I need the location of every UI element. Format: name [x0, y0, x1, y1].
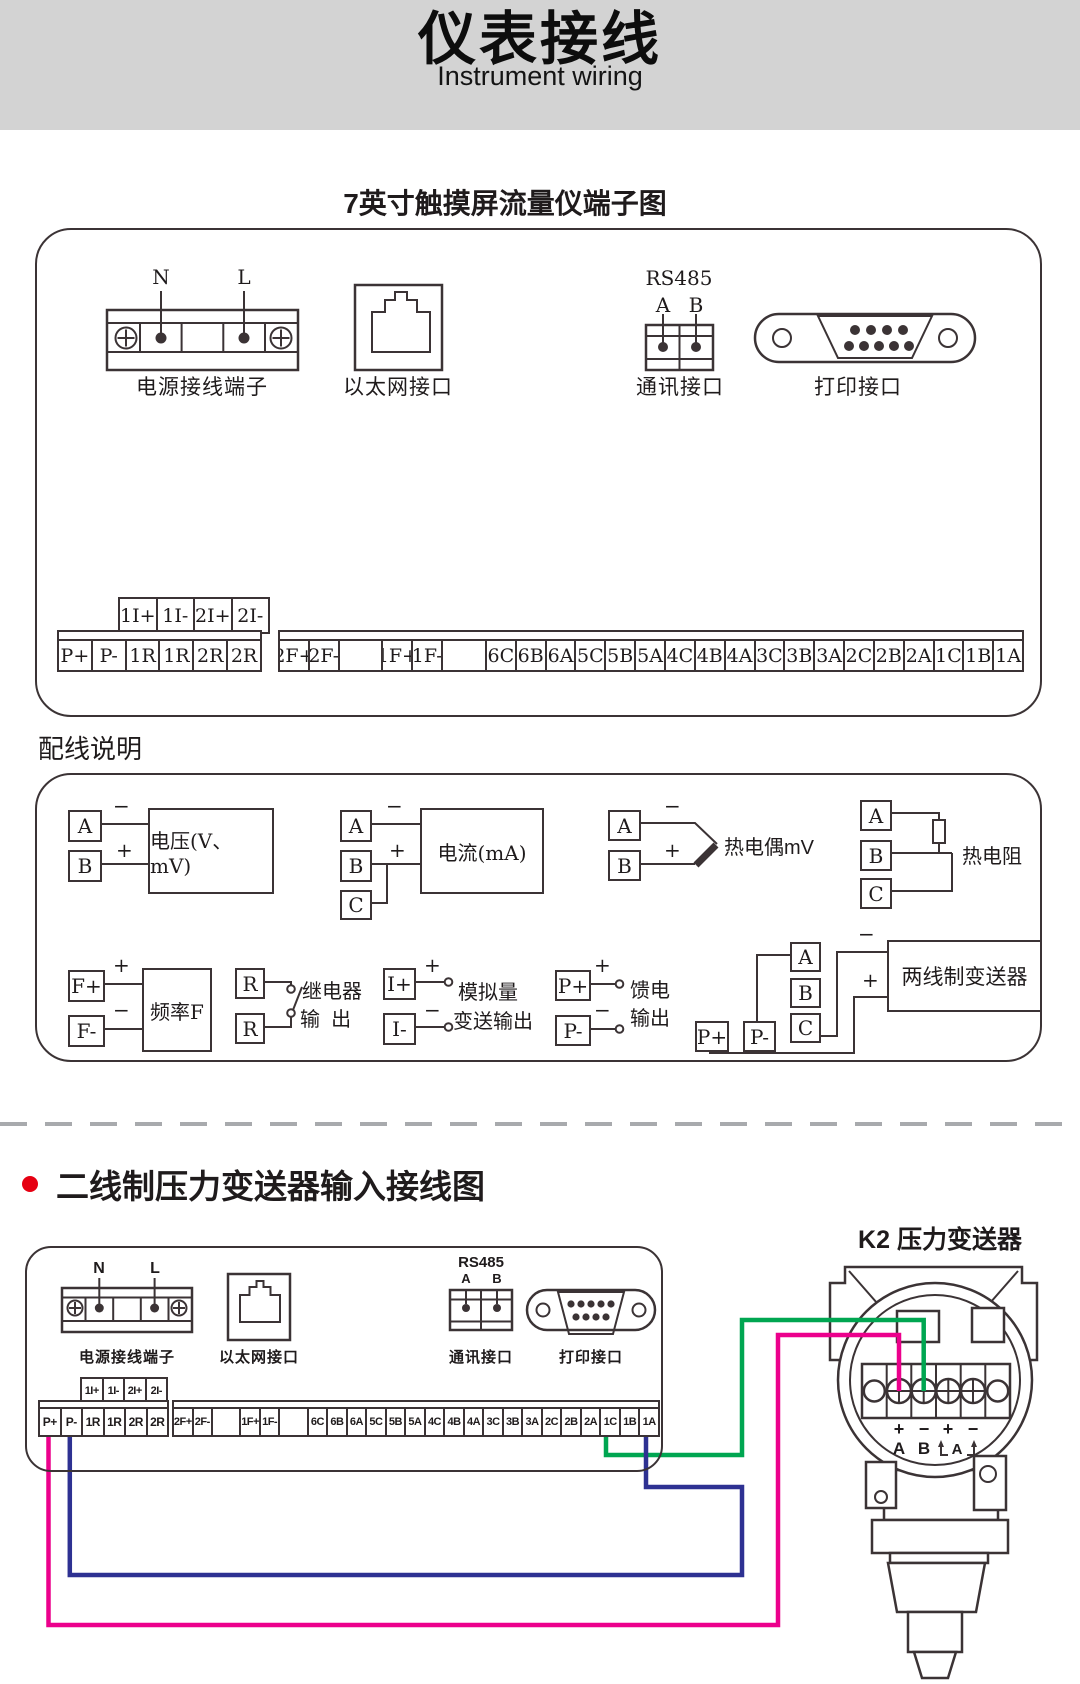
terminal-strip-group1-small: P+P-1R1R2R2R	[38, 1400, 169, 1437]
terminal-cell: P+	[40, 1409, 62, 1435]
terminal-cell: 4B	[696, 641, 726, 670]
frequency-minus: −	[113, 998, 130, 1022]
section1-title: 7英寸触摸屏流量仪端子图	[343, 182, 667, 222]
terminal-cell: 5A	[406, 1409, 426, 1435]
ethernet-caption-small: 以太网接口	[219, 1346, 299, 1367]
feed-label-line1: 馈电	[630, 974, 670, 1003]
page: 仪表接线 Instrument wiring 7英寸触摸屏流量仪端子图 N L …	[0, 0, 1080, 1684]
terminal-cell	[280, 1409, 308, 1435]
terminal-cell: 6C	[487, 641, 517, 670]
terminal-cell: 2I+	[195, 599, 233, 632]
terminal-cell: P+	[59, 641, 93, 670]
printer-caption-small: 打印接口	[559, 1346, 623, 1367]
twowire-minus: −	[858, 922, 875, 946]
terminal-cell: 4C	[666, 641, 696, 670]
terminal-cell: 6C	[309, 1409, 329, 1435]
terminal-cell: 4A	[726, 641, 756, 670]
terminal-cell: 6A	[348, 1409, 368, 1435]
analog-terminal-iplus: I+	[383, 968, 416, 1000]
terminal-cell: 5B	[387, 1409, 407, 1435]
terminal-cell: 2I+	[125, 1379, 147, 1402]
relay-label-line2: 输 出	[300, 1003, 351, 1032]
terminal-cell: 4B	[445, 1409, 465, 1435]
thermocouple-plus: +	[664, 838, 681, 862]
twowire-terminal-pminus: P-	[743, 1021, 776, 1052]
power-l-label: L	[237, 265, 250, 289]
power-caption-small: 电源接线端子	[79, 1346, 175, 1367]
current-terminal-c: C	[340, 890, 372, 920]
strip-band	[59, 632, 260, 641]
terminal-cell	[443, 641, 487, 670]
terminal-cell: 2R	[194, 641, 228, 670]
terminal-cell: 2F+	[280, 641, 310, 670]
twowire-box: 两线制变送器	[887, 940, 1042, 1012]
analog-label-line2: 变送输出	[453, 1005, 533, 1034]
rs485-b-label-small: B	[492, 1271, 501, 1286]
analog-minus: −	[424, 998, 441, 1022]
current-box: 电流(mA)	[420, 808, 544, 894]
current-minus: −	[386, 794, 403, 818]
terminal-cell: 3B	[785, 641, 815, 670]
terminal-cell: 5C	[367, 1409, 387, 1435]
terminal-cell: 2F-	[310, 641, 340, 670]
terminal-cell: 6B	[517, 641, 547, 670]
strip-band	[40, 1402, 167, 1409]
analog-plus: +	[424, 953, 441, 977]
voltage-terminal-b: B	[68, 850, 102, 882]
terminal-strip-group1: P+P-1R1R2R2R	[57, 630, 262, 672]
strip-band	[174, 1402, 658, 1409]
terminal-cell: 2C	[845, 641, 875, 670]
transmitter-b-label: B	[918, 1439, 930, 1459]
transmitter-minus1: −	[919, 1419, 930, 1440]
ethernet-caption: 以太网接口	[343, 371, 453, 401]
analog-label-line1: 模拟量	[458, 976, 518, 1005]
twowire-terminal-pplus: P+	[695, 1021, 729, 1052]
terminal-cell	[340, 641, 384, 670]
comm-caption: 通讯接口	[636, 371, 724, 401]
frequency-box: 频率F	[142, 968, 212, 1052]
terminal-strip-group2-small: 2F+2F-1F+1F-6C6B6A5C5B5A4C4B4A3C3B3A2C2B…	[172, 1400, 660, 1437]
twowire-terminal-a: A	[790, 942, 821, 972]
twowire-terminal-b: B	[790, 978, 821, 1008]
printer-caption: 打印接口	[814, 371, 902, 401]
frequency-terminal-fminus: F-	[68, 1015, 105, 1047]
terminal-cell: 6A	[547, 641, 577, 670]
rtd-terminal-a: A	[860, 800, 892, 831]
feed-label-line2: 输出	[630, 1002, 670, 1031]
voltage-terminal-a: A	[68, 810, 102, 842]
terminal-cell: 2C	[543, 1409, 563, 1435]
terminal-cell: 3C	[756, 641, 786, 670]
terminal-cell: 1R	[160, 641, 194, 670]
frequency-plus: +	[113, 953, 130, 977]
voltage-plus: +	[116, 838, 133, 862]
terminal-strip-group2: 2F+2F-1F+1F-6C6B6A5C5B5A4C4B4A3C3B3A2C2B…	[278, 630, 1024, 672]
comm-caption-small: 通讯接口	[449, 1346, 513, 1367]
voltage-box: 电压(V、mV)	[148, 808, 274, 894]
thermocouple-label: 热电偶mV	[724, 831, 814, 860]
rs485-label-small: RS485	[458, 1254, 504, 1271]
terminal-cell: 2B	[562, 1409, 582, 1435]
feed-minus: −	[594, 998, 611, 1022]
strip-band	[280, 632, 1022, 641]
rtd-terminal-c: C	[860, 878, 892, 909]
power-l-label-small: L	[150, 1260, 160, 1278]
terminal-cell: 2I-	[147, 1379, 167, 1402]
feed-terminal-pminus: P-	[555, 1015, 591, 1046]
thermocouple-minus: −	[664, 794, 681, 818]
terminal-cell: 5B	[606, 641, 636, 670]
terminal-cell: 1A	[640, 1409, 658, 1435]
terminal-cell: 2R	[228, 641, 260, 670]
terminal-cell: 4C	[426, 1409, 446, 1435]
feed-terminal-pplus: P+	[555, 970, 591, 1001]
terminal-cell: 1R	[105, 1409, 127, 1435]
terminal-cell: P-	[93, 641, 127, 670]
rtd-label: 热电阻	[962, 840, 1022, 869]
terminal-cell: 2B	[875, 641, 905, 670]
rs485-a-label: A	[656, 293, 670, 317]
bullet-icon	[22, 1176, 38, 1192]
terminal-cell: 4A	[465, 1409, 485, 1435]
terminal-cell: 2R	[126, 1409, 148, 1435]
transmitter-minus2: −	[968, 1419, 979, 1440]
terminal-cell: 1R	[127, 641, 161, 670]
transmitter-title: K2 压力变送器	[858, 1220, 1022, 1256]
transmitter-a-label: A	[893, 1439, 905, 1459]
terminal-cell: 2I-	[233, 599, 269, 632]
terminal-cell: 1F-	[261, 1409, 281, 1435]
terminal-cell: 1B	[621, 1409, 641, 1435]
terminal-cell: 3A	[815, 641, 845, 670]
terminal-cell: 1F-	[413, 641, 443, 670]
section3-title: 二线制压力变送器输入接线图	[56, 1160, 485, 1208]
current-terminal-a: A	[340, 810, 372, 842]
twowire-plus: +	[862, 968, 879, 992]
pressure-transmitter-drawing	[830, 1267, 1037, 1678]
terminal-cell: 1C	[935, 641, 965, 670]
current-terminal-b: B	[340, 850, 372, 882]
terminal-cell: 2R	[148, 1409, 168, 1435]
terminal-cell: 1F+	[383, 641, 413, 670]
transmitter-loop-label: A	[952, 1441, 963, 1458]
terminal-cell: P-	[62, 1409, 84, 1435]
page-subtitle: Instrument wiring	[0, 61, 1080, 92]
power-n-label: N	[152, 265, 170, 289]
terminal-cell: 3A	[523, 1409, 543, 1435]
terminal-cell: 2F+	[174, 1409, 194, 1435]
terminal-cell	[213, 1409, 241, 1435]
terminal-cell: 1B	[964, 641, 994, 670]
terminal-cell: 2F-	[194, 1409, 214, 1435]
wiring-notes-title: 配线说明	[38, 729, 142, 766]
terminal-cell: 1C	[601, 1409, 621, 1435]
terminal-cell: 5A	[636, 641, 666, 670]
rs485-b-label: B	[689, 293, 704, 317]
terminal-cell: 2A	[905, 641, 935, 670]
current-plus: +	[389, 838, 406, 862]
aux-terminal-strip: 1I+1I-2I+2I-	[118, 597, 270, 634]
terminal-cell: 5C	[576, 641, 606, 670]
frequency-terminal-fplus: F+	[68, 970, 105, 1002]
terminal-cell: 3C	[484, 1409, 504, 1435]
relay-terminal-r1: R	[235, 968, 265, 999]
thermocouple-terminal-b: B	[608, 850, 641, 881]
terminal-cell: 1I-	[104, 1379, 126, 1402]
terminal-cell: 1F+	[241, 1409, 261, 1435]
transmitter-plus2: +	[943, 1419, 954, 1440]
twowire-terminal-c: C	[790, 1013, 821, 1043]
terminal-cell: 1I+	[120, 599, 158, 632]
analog-terminal-iminus: I-	[383, 1013, 416, 1045]
rtd-terminal-b: B	[860, 840, 892, 871]
voltage-minus: −	[113, 794, 130, 818]
rs485-a-label-small: A	[461, 1271, 470, 1286]
terminal-cell: 1R	[83, 1409, 105, 1435]
terminal-cell: 1A	[994, 641, 1022, 670]
power-caption: 电源接线端子	[136, 371, 268, 401]
feed-plus: +	[594, 953, 611, 977]
power-n-label-small: N	[93, 1260, 105, 1278]
relay-label-line1: 继电器	[302, 975, 362, 1004]
relay-terminal-r2: R	[235, 1013, 265, 1044]
terminal-cell: 3B	[504, 1409, 524, 1435]
page-header: 仪表接线 Instrument wiring	[0, 0, 1080, 130]
thermocouple-terminal-a: A	[608, 810, 641, 841]
terminal-cell: 6B	[328, 1409, 348, 1435]
transmitter-plus1: +	[894, 1419, 905, 1440]
terminal-cell: 2A	[582, 1409, 602, 1435]
terminal-cell: 1I+	[82, 1379, 104, 1402]
rs485-label: RS485	[646, 266, 713, 290]
terminal-cell: 1I-	[158, 599, 196, 632]
